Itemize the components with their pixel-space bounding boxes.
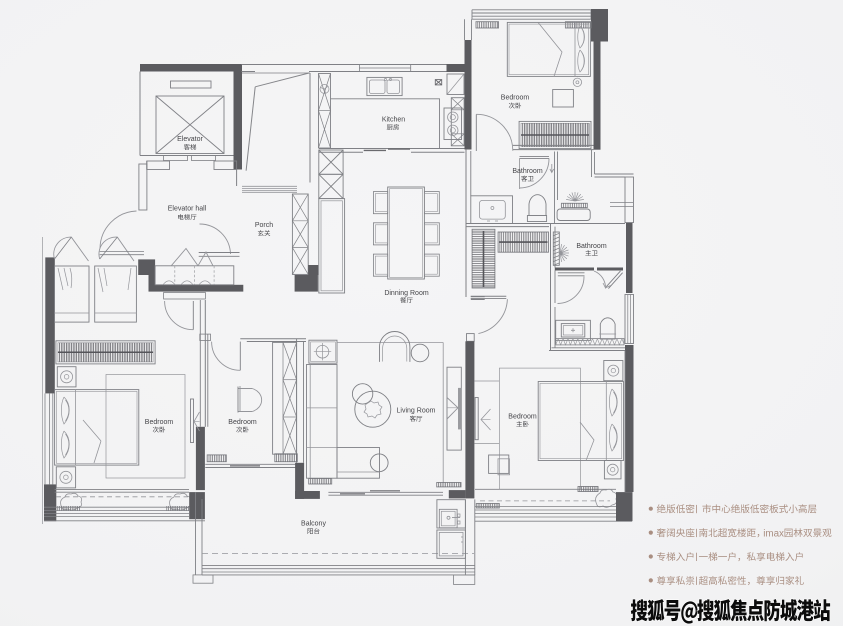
svg-text:imax: imax bbox=[763, 528, 784, 539]
svg-text:Bathroom: Bathroom bbox=[512, 168, 543, 175]
svg-text:Balcony: Balcony bbox=[301, 521, 326, 528]
svg-text:Bedroom: Bedroom bbox=[501, 95, 530, 102]
svg-text:Dinning Room: Dinning Room bbox=[384, 290, 429, 297]
svg-text:Kitchen: Kitchen bbox=[382, 117, 405, 124]
svg-text:Bathroom: Bathroom bbox=[576, 243, 607, 250]
svg-text:Bedroom: Bedroom bbox=[145, 419, 174, 426]
svg-text:Bedroom: Bedroom bbox=[508, 414, 537, 421]
svg-text:Porch: Porch bbox=[255, 222, 273, 229]
svg-text:Bedroom: Bedroom bbox=[228, 419, 257, 426]
svg-text:Elevator: Elevator bbox=[177, 136, 203, 143]
svg-text:Living Room: Living Room bbox=[397, 408, 436, 415]
svg-text:Elevator hall: Elevator hall bbox=[168, 206, 207, 213]
